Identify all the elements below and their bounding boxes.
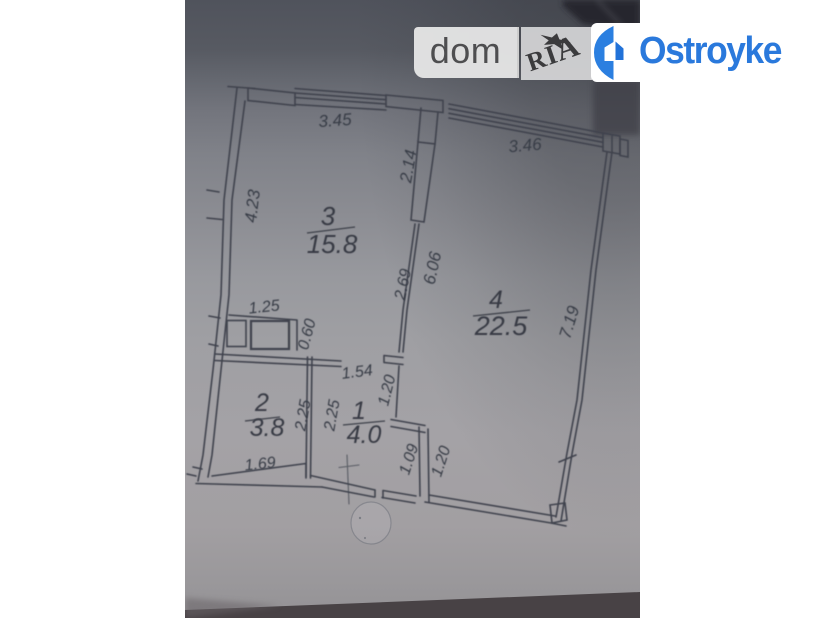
svg-text:3.46: 3.46	[508, 135, 543, 157]
svg-text:15.8: 15.8	[307, 229, 358, 259]
svg-text:4.0: 4.0	[347, 421, 382, 449]
svg-text:3.45: 3.45	[318, 110, 353, 131]
svg-text:2: 2	[254, 389, 269, 417]
svg-text:1.25: 1.25	[248, 297, 281, 317]
svg-text:1.69: 1.69	[244, 454, 277, 474]
svg-text:4: 4	[489, 286, 503, 314]
svg-text:0.60: 0.60	[295, 317, 320, 352]
svg-text:3: 3	[321, 201, 336, 231]
svg-text:4.23: 4.23	[241, 188, 264, 224]
